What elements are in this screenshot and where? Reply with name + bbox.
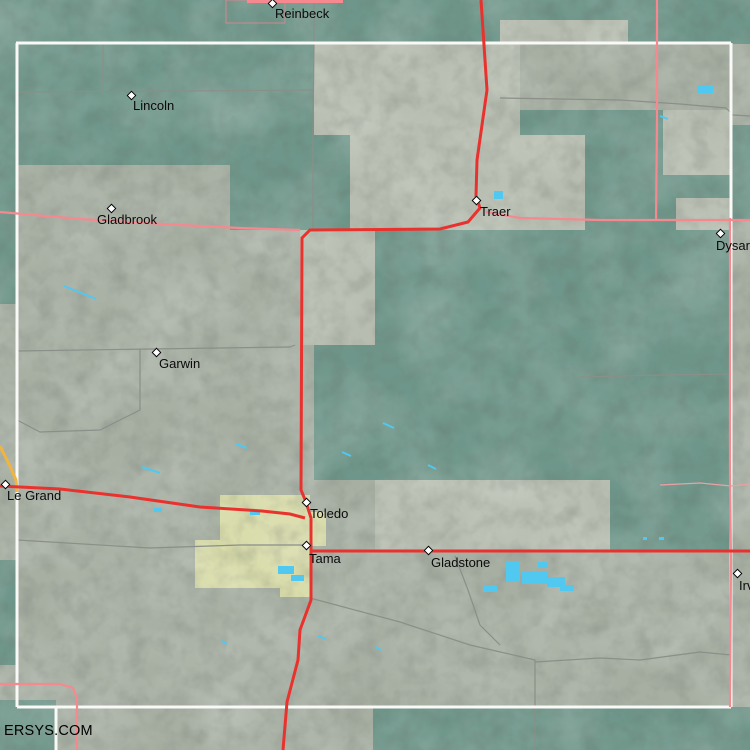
town-label: Gladstone [431,556,490,569]
lake [560,585,574,591]
town-label: Toledo [310,507,348,520]
lake [483,585,497,592]
map-canvas [0,0,750,750]
lake [659,537,664,540]
town-label: Traer [480,205,511,218]
lake [278,566,294,574]
town-label: Reinbeck [275,7,329,20]
map-viewport[interactable]: ReinbeckLincolnGladbrookTraerDysartGarwi… [0,0,750,750]
town-label: Dysart [716,239,750,252]
lake [494,191,503,199]
secondary-highway [730,218,731,707]
town-label: Tama [309,552,341,565]
lake [506,562,520,582]
ersys-watermark: ERSYS.COM [4,723,93,739]
town-label: Gladbrook [97,213,157,226]
lake [291,575,304,581]
town-label: Irving [739,579,750,592]
lake [538,562,548,568]
lake [643,537,647,540]
town-label: Lincoln [133,99,174,112]
secondary-highway [656,0,657,220]
lake [697,85,713,93]
town-label: Garwin [159,357,200,370]
lake [154,508,162,512]
town-label: Le Grand [7,489,61,502]
lake [522,571,548,584]
